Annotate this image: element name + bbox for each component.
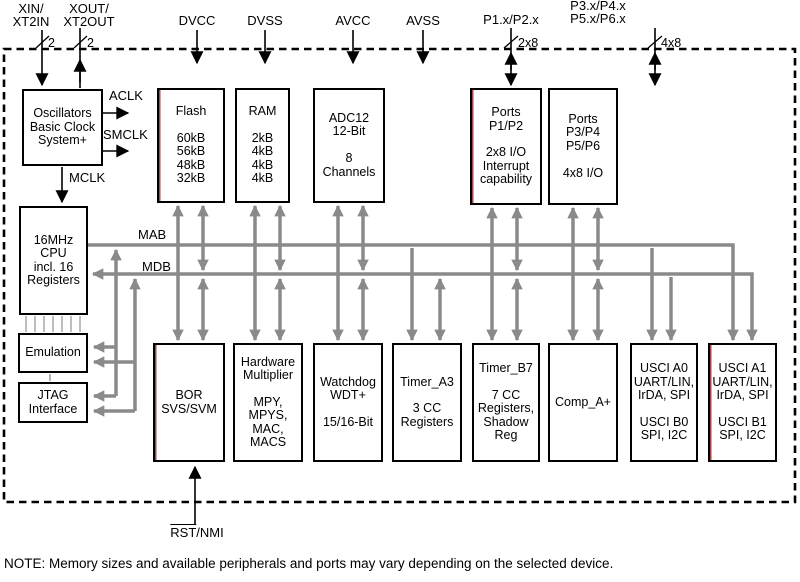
text-line: Interrupt — [483, 160, 530, 173]
text-line: Registers, — [478, 402, 534, 415]
block-timer-b7: Timer_B77 CCRegisters,ShadowReg — [472, 343, 540, 462]
text-line: 8 — [346, 152, 353, 165]
block-oscillators: OscillatorsBasic ClockSystem+ — [22, 89, 103, 166]
text-line: System+ — [38, 134, 87, 147]
block-emulation: Emulation — [18, 333, 88, 373]
text-line: SPI, I2C — [641, 429, 688, 442]
text-line: 56kB — [177, 145, 206, 158]
text-line: capability — [480, 173, 532, 186]
text-line: P5/P6 — [566, 140, 600, 153]
aclk-label: ACLK — [109, 88, 143, 103]
text-line: BOR — [175, 389, 202, 402]
block-usci-a0-b0: USCI A0UART/LIN,IrDA, SPIUSCI B0SPI, I2C — [630, 343, 698, 462]
block-jtag-interface: JTAGInterface — [18, 382, 88, 423]
text-line: Timer_B7 — [479, 362, 533, 375]
rst-nmi-label: RST/NMI — [166, 527, 228, 540]
text-line: 4kB — [252, 145, 274, 158]
text-line: 4kB — [252, 172, 274, 185]
text-line: Hardware — [241, 356, 295, 369]
text-line: 7 CC — [492, 389, 520, 402]
text-line: 15/16-Bit — [323, 416, 373, 429]
nmi-text: /NMI — [196, 525, 223, 540]
mclk-label: MCLK — [69, 170, 105, 185]
text-line: Ports — [568, 113, 597, 126]
text-line: JTAG — [37, 389, 68, 402]
text-line: 32kB — [177, 172, 206, 185]
block-cpu: 16MHzCPUincl. 16Registers — [19, 206, 88, 315]
text-line: Oscillators — [33, 107, 91, 120]
text-line: Registers — [27, 274, 80, 287]
text-line: MAC, — [252, 423, 283, 436]
block-adc12: ADC1212-Bit8Channels — [313, 88, 385, 203]
bus-width-xout: 2 — [87, 36, 94, 50]
text-line: Registers — [401, 416, 454, 429]
smclk-label: SMCLK — [103, 127, 148, 142]
text-line: IrDA, SPI — [638, 389, 690, 402]
text-line: RAM — [249, 105, 277, 118]
text-line: Interface — [29, 403, 78, 416]
block-flash: Flash60kB56kB48kB32kB — [157, 88, 225, 203]
text-line: USCI A1 — [719, 362, 767, 375]
text-line: P3/P4 — [566, 126, 600, 139]
text-line: Reg — [495, 429, 518, 442]
text-line: SVS/SVM — [161, 403, 217, 416]
pin-label-xout: XOUT/XT2OUT — [58, 3, 120, 30]
pin-label-avcc: AVCC — [328, 15, 378, 28]
pin-label-dvcc: DVCC — [172, 15, 222, 28]
block-ports-p1-p2: PortsP1/P22x8 I/OInterruptcapability — [470, 88, 542, 205]
text-line: XT2OUT — [58, 16, 120, 29]
text-line: Flash — [176, 105, 207, 118]
functional-block-diagram: XIN/XT2IN XOUT/XT2OUT DVCC DVSS AVCC AVS… — [0, 0, 800, 582]
text-line: 2x8 I/O — [486, 146, 526, 159]
text-line: 60kB — [177, 132, 206, 145]
rst-overline-text: RST — [170, 525, 196, 540]
text-line: P5.x/P6.x — [566, 13, 630, 26]
block-bor-svs-svm: BORSVS/SVM — [153, 343, 225, 462]
text-line: incl. 16 — [34, 261, 74, 274]
mab-label: MAB — [138, 227, 166, 242]
mdb-label: MDB — [142, 259, 171, 274]
text-line: 12-Bit — [333, 125, 366, 138]
text-line: Comp_A+ — [555, 396, 611, 409]
text-line: Timer_A3 — [400, 376, 454, 389]
text-line: USCI B0 — [640, 416, 689, 429]
pin-label-avss: AVSS — [398, 15, 448, 28]
pin-label-xin: XIN/XT2IN — [6, 3, 56, 30]
text-line: MACS — [250, 436, 286, 449]
text-line: 48kB — [177, 159, 206, 172]
pin-label-p1p2: P1.x/P2.x — [478, 14, 544, 27]
text-line: Channels — [323, 166, 376, 179]
text-line: USCI A0 — [640, 362, 688, 375]
bus-width-xin: 2 — [48, 36, 55, 50]
text-line: ADC12 — [329, 112, 369, 125]
footnote: NOTE: Memory sizes and available periphe… — [4, 556, 613, 571]
text-line: CPU — [40, 247, 66, 260]
block-timer-a3: Timer_A33 CCRegisters — [392, 343, 462, 462]
text-line: P1/P2 — [489, 120, 523, 133]
text-line: SPI, I2C — [719, 429, 766, 442]
bus-width-p3p6: 4x8 — [661, 36, 681, 50]
text-line: Shadow — [483, 416, 528, 429]
text-line: 2kB — [252, 132, 274, 145]
cpu-emulation-bus — [26, 316, 80, 332]
text-line: 3 CC — [413, 402, 441, 415]
text-line: Emulation — [25, 346, 81, 359]
block-comp-a: Comp_A+ — [548, 343, 618, 462]
text-line: Ports — [491, 106, 520, 119]
block-ports-p3-p6: PortsP3/P4P5/P64x8 I/O — [548, 88, 618, 205]
text-line: UART/LIN, — [634, 376, 694, 389]
bus-width-p1p2: 2x8 — [518, 36, 538, 50]
text-line: MPY, — [254, 396, 283, 409]
text-line: 4kB — [252, 159, 274, 172]
text-line: 16MHz — [34, 234, 74, 247]
block-usci-a1-b1: USCI A1UART/LIN,IrDA, SPIUSCI B1SPI, I2C — [708, 343, 777, 462]
text-line: IrDA, SPI — [716, 389, 768, 402]
text-line: Multiplier — [243, 369, 293, 382]
text-line: USCI B1 — [718, 416, 767, 429]
text-line: XT2IN — [6, 16, 56, 29]
text-line: WDT+ — [330, 389, 366, 402]
text-line: 4x8 I/O — [563, 167, 603, 180]
text-line: Watchdog — [320, 376, 376, 389]
block-ram: RAM2kB4kB4kB4kB — [235, 88, 290, 203]
text-line: MPYS, — [249, 409, 288, 422]
text-line: UART/LIN, — [712, 376, 772, 389]
block-hardware-multiplier: HardwareMultiplierMPY,MPYS,MAC,MACS — [233, 343, 303, 462]
block-watchdog: WatchdogWDT+15/16-Bit — [313, 343, 383, 462]
text-line: Basic Clock — [30, 121, 95, 134]
pin-label-p3p6: P3.x/P4.xP5.x/P6.x — [566, 0, 630, 27]
pin-label-dvss: DVSS — [240, 15, 290, 28]
